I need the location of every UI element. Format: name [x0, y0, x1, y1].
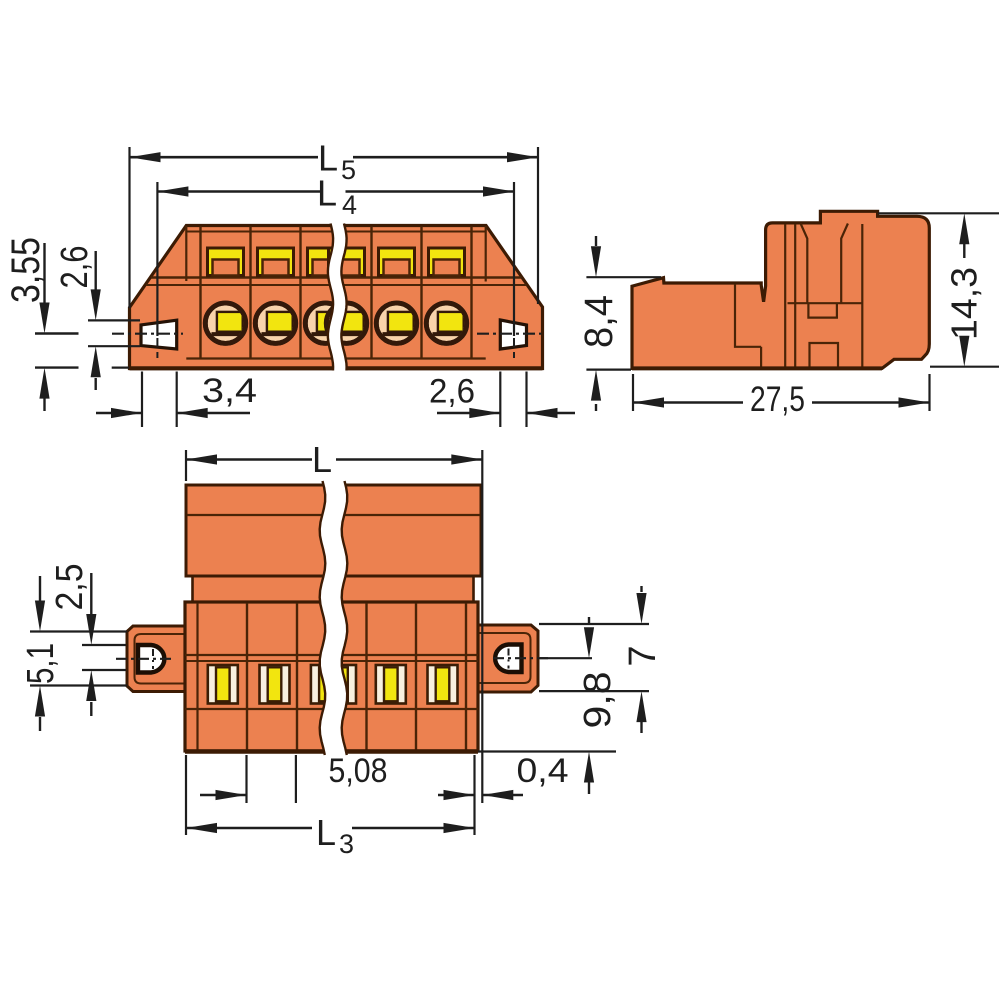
svg-text:4: 4	[342, 190, 357, 220]
svg-text:3: 3	[339, 829, 354, 859]
svg-text:5,08: 5,08	[329, 752, 388, 790]
svg-text:3,55: 3,55	[4, 237, 48, 303]
svg-text:9,8: 9,8	[577, 672, 619, 729]
svg-text:L: L	[317, 173, 337, 214]
svg-text:L: L	[316, 812, 336, 853]
svg-text:2,6: 2,6	[429, 373, 475, 411]
svg-text:8,4: 8,4	[577, 295, 621, 348]
svg-text:27,5: 27,5	[750, 380, 805, 419]
svg-text:2,5: 2,5	[49, 564, 91, 611]
svg-text:3,4: 3,4	[202, 372, 257, 410]
svg-text:L: L	[312, 439, 332, 480]
svg-text:5,1: 5,1	[20, 643, 62, 684]
svg-text:5: 5	[341, 155, 356, 185]
svg-text:14,3: 14,3	[944, 267, 985, 340]
svg-text:7: 7	[622, 645, 664, 666]
svg-text:0,4: 0,4	[517, 752, 569, 790]
svg-text:2,6: 2,6	[54, 246, 96, 289]
